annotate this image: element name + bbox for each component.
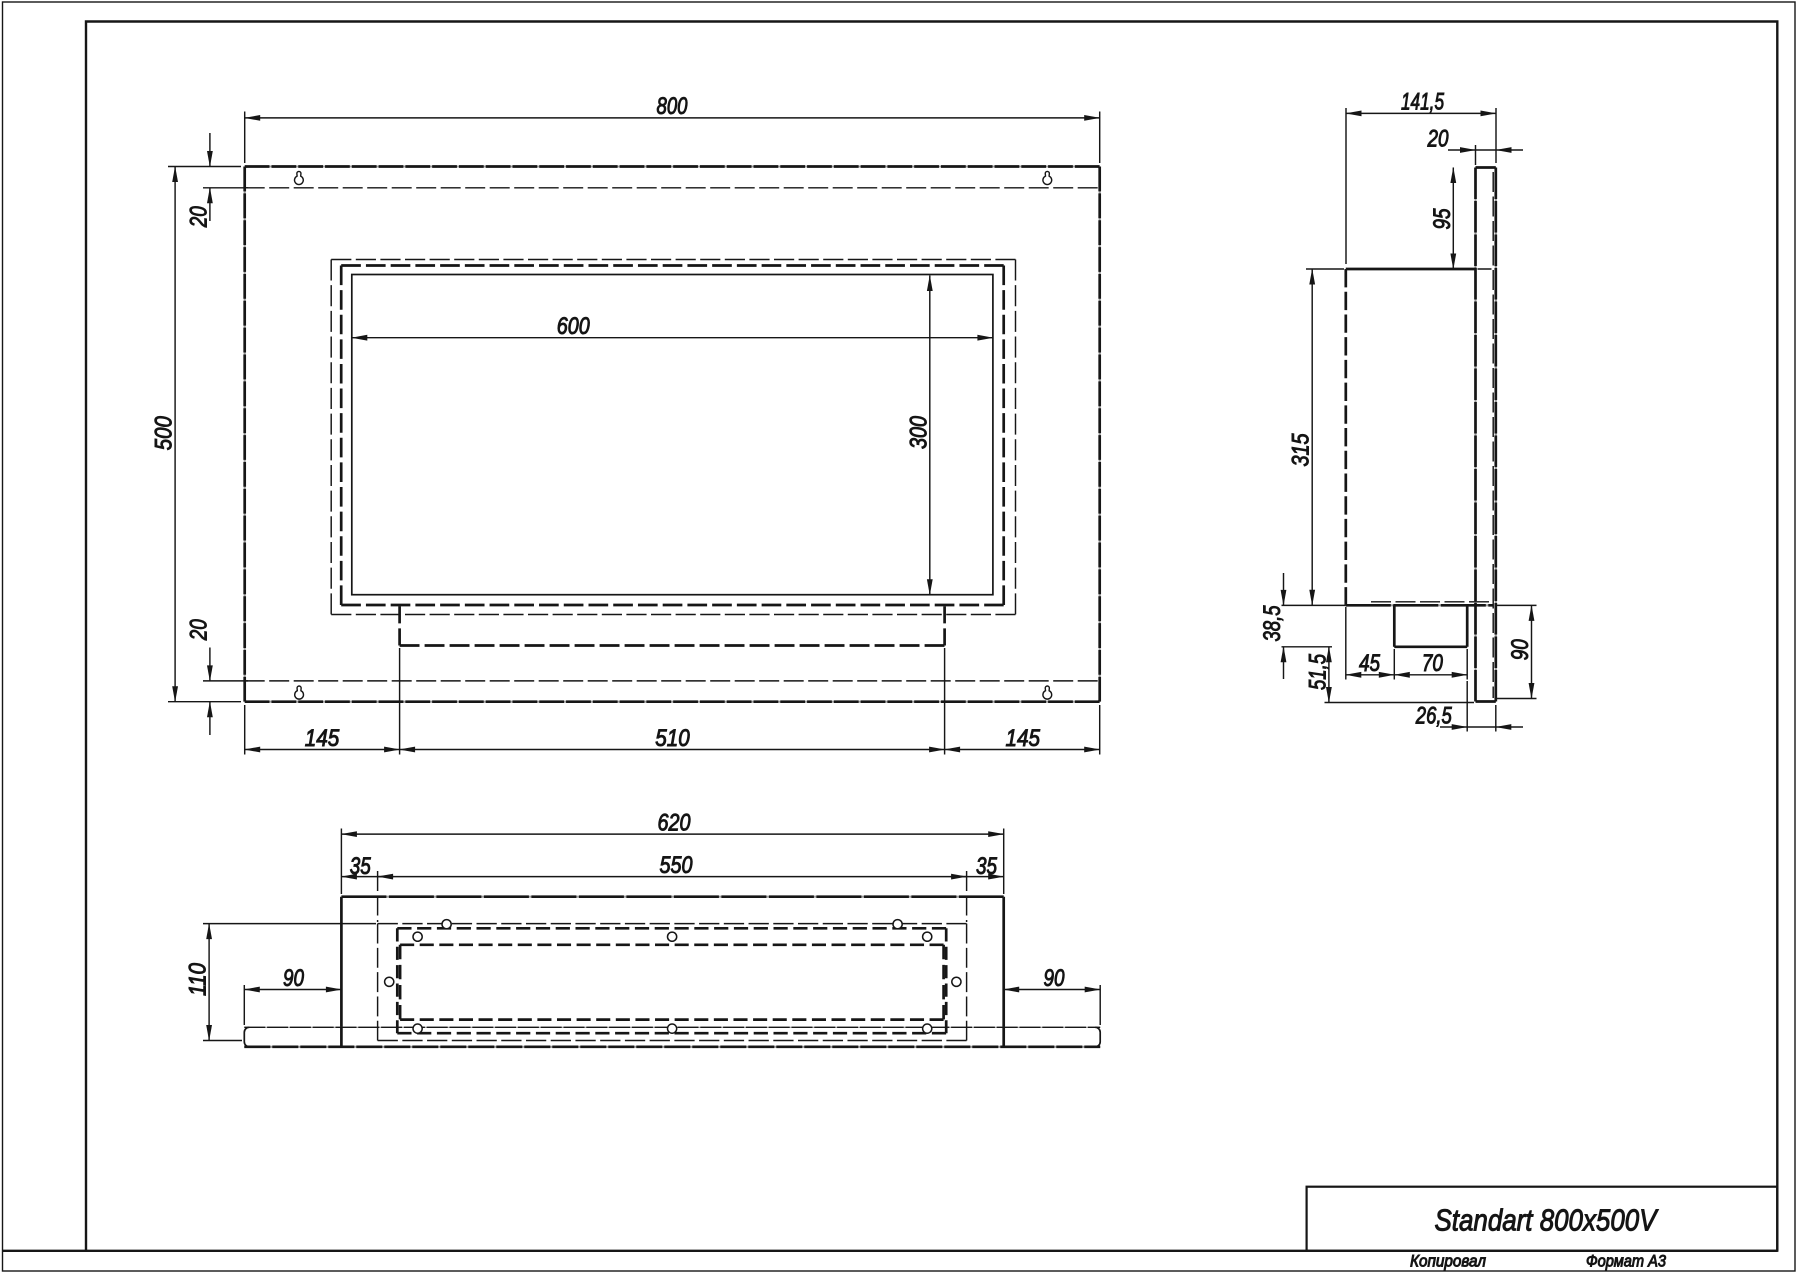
svg-text:20: 20 <box>185 619 212 641</box>
svg-text:70: 70 <box>1422 650 1444 677</box>
svg-text:Standart 800x500V: Standart 800x500V <box>1435 1203 1659 1237</box>
svg-text:45: 45 <box>1359 650 1381 677</box>
svg-text:90: 90 <box>1044 965 1066 992</box>
svg-text:35: 35 <box>976 853 998 880</box>
svg-text:500: 500 <box>151 416 178 451</box>
svg-text:141,5: 141,5 <box>1401 89 1444 116</box>
svg-text:90: 90 <box>1507 639 1534 661</box>
svg-text:510: 510 <box>655 725 690 752</box>
svg-text:300: 300 <box>905 415 932 449</box>
svg-text:620: 620 <box>658 809 692 836</box>
svg-text:Формат А3: Формат А3 <box>1586 1252 1667 1270</box>
svg-text:145: 145 <box>305 725 340 752</box>
svg-text:20: 20 <box>1427 125 1449 152</box>
svg-text:26,5: 26,5 <box>1415 702 1452 729</box>
svg-text:145: 145 <box>1006 725 1041 752</box>
svg-text:51,5: 51,5 <box>1304 654 1331 690</box>
svg-text:600: 600 <box>557 313 591 340</box>
svg-text:110: 110 <box>185 962 212 996</box>
svg-text:800: 800 <box>657 93 689 120</box>
svg-text:35: 35 <box>350 853 372 880</box>
svg-text:550: 550 <box>660 852 694 879</box>
svg-text:Копировал: Копировал <box>1410 1252 1486 1270</box>
svg-text:315: 315 <box>1288 433 1315 467</box>
svg-text:95: 95 <box>1429 208 1456 230</box>
svg-text:20: 20 <box>185 206 212 228</box>
svg-text:90: 90 <box>283 965 305 992</box>
svg-text:38,5: 38,5 <box>1259 605 1286 641</box>
